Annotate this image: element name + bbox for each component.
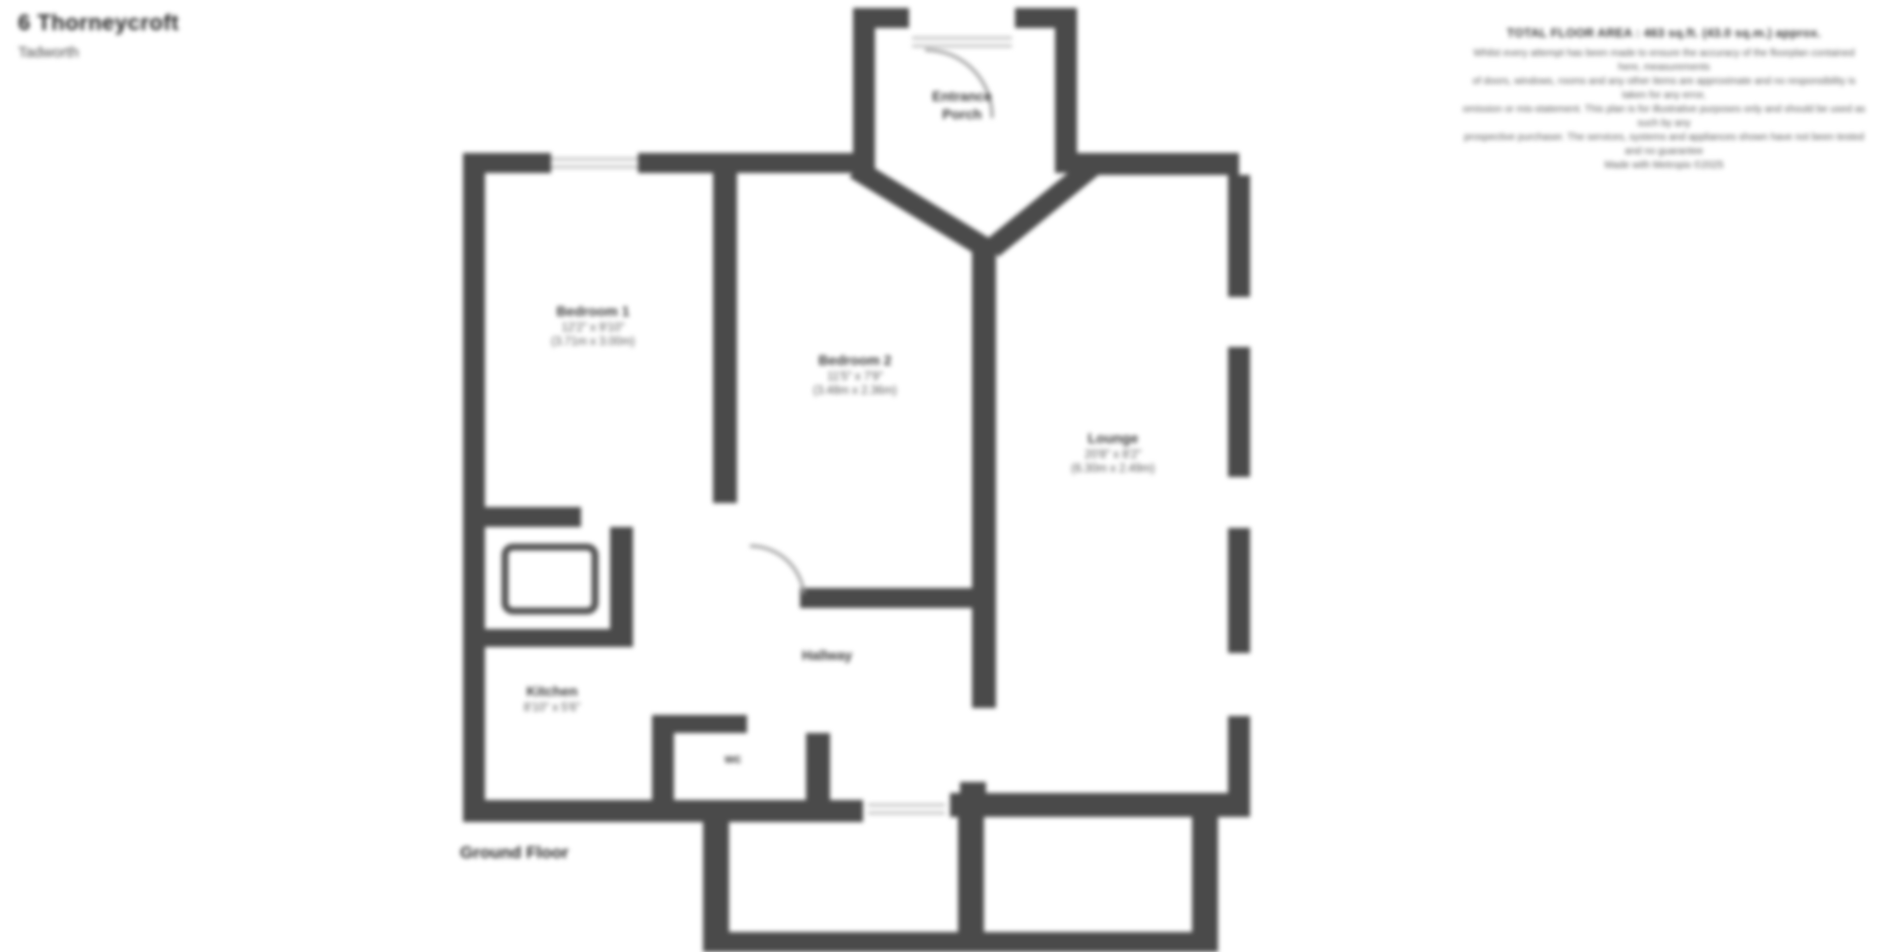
room-label-hallway: Hallway (802, 648, 852, 665)
exterior-walls (463, 8, 1250, 822)
room-label-kitchen: Kitchen 8'10" x 5'6" (524, 683, 581, 715)
floorplan-drawing (0, 0, 1880, 952)
garage-extension-walls (703, 817, 1218, 952)
room-label-porch: Entrance Porch (932, 88, 992, 123)
room-label-bedroom2: Bedroom 2 11'5" x 7'9" (3.48m x 2.36m) (813, 352, 897, 398)
bathtub-icon (505, 547, 595, 611)
room-label-lounge: Lounge 20'8" x 8'2" (6.30m x 2.49m) (1071, 430, 1155, 476)
room-label-bedroom1: Bedroom 1 12'2" x 9'10" (3.71m x 3.00m) (551, 303, 635, 349)
floor-name: Ground Floor (460, 843, 569, 863)
porch-angled-walls (864, 170, 1088, 246)
room-label-wc: wc (725, 752, 742, 768)
floorplan-page: 6 Thorneycroft Tadworth TOTAL FLOOR AREA… (0, 0, 1880, 952)
interior-walls (463, 173, 996, 818)
